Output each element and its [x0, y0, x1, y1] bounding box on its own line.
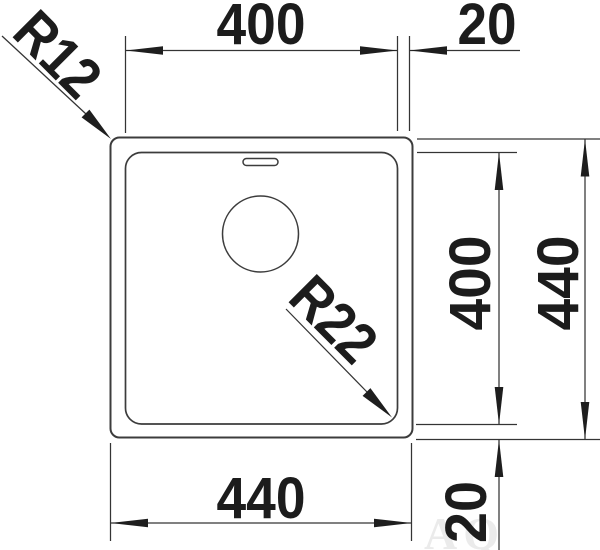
arrow-right-440-bottom [581, 402, 590, 440]
drain-hole [223, 196, 299, 272]
arrow-bottom-440-right [374, 519, 412, 528]
arrow-top-20 [410, 46, 448, 55]
arrow-right-440-top [581, 139, 590, 177]
label-outer-corner-radius: R12 [1, 0, 114, 111]
sink-bowl-outline [126, 153, 398, 425]
drawing-canvas: AQ 400 20 400 440 440 20 R12 R22 [0, 0, 600, 550]
arrow-top-400-right [360, 46, 398, 55]
sink-technical-drawing: AQ 400 20 400 440 440 20 R12 R22 [0, 0, 600, 550]
arrow-right-400-top [495, 153, 504, 191]
overflow-slot [243, 159, 278, 166]
arrow-r22 [363, 388, 392, 417]
label-top-edge-offset: 20 [458, 0, 517, 57]
arrow-bottom-440-left [111, 519, 149, 528]
label-bowl-height: 400 [438, 236, 503, 331]
label-top-width: 400 [217, 0, 306, 57]
arrow-right-400-bottom [495, 387, 504, 425]
label-bottom-edge-offset: 20 [434, 481, 499, 543]
arrow-r12 [82, 110, 111, 139]
label-overall-height: 440 [526, 236, 591, 331]
arrow-right-20 [495, 440, 504, 478]
label-overall-width: 440 [217, 466, 306, 531]
label-bowl-corner-radius: R22 [277, 263, 390, 376]
arrow-top-400-left [126, 46, 164, 55]
